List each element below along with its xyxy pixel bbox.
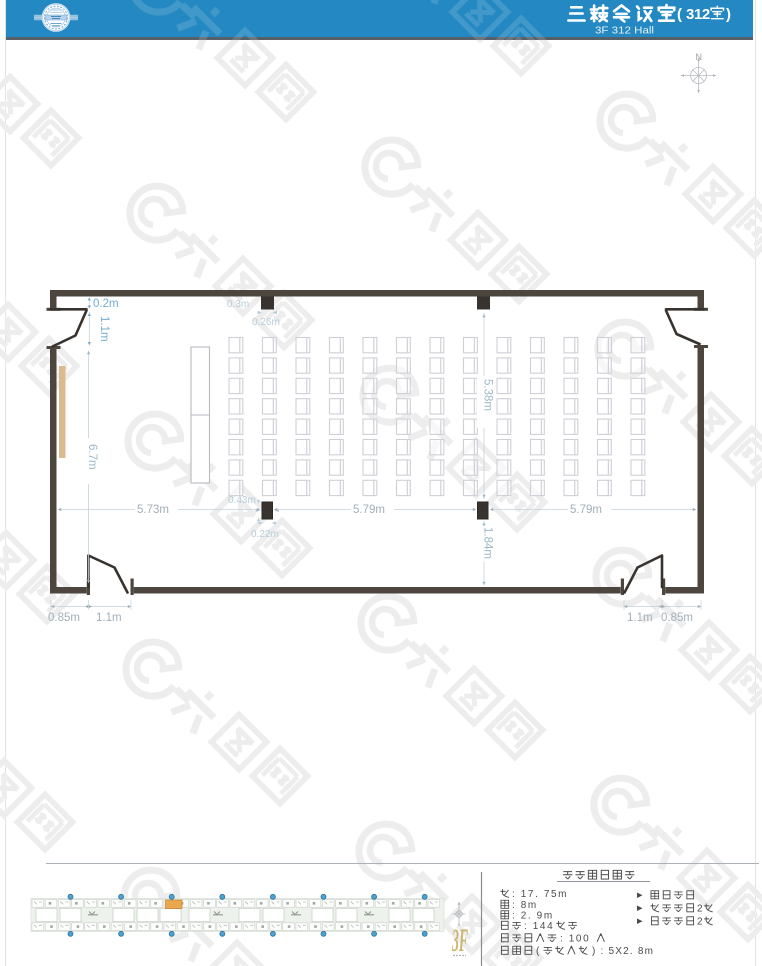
svg-text:2: 2: [697, 917, 703, 928]
svg-text:: 17. 75m: : 17. 75m: [512, 889, 568, 900]
svg-text:312: 312: [686, 6, 710, 23]
svg-text:) : 5X2. 8m: ) : 5X2. 8m: [592, 946, 654, 957]
svg-text:3F: 3F: [451, 922, 468, 959]
svg-text:(: (: [677, 6, 682, 23]
svg-text:: 100: : 100: [560, 934, 590, 945]
svg-text:: 2. 9m: : 2. 9m: [512, 911, 554, 922]
svg-text:: 8m: : 8m: [512, 900, 538, 911]
svg-text:3F 312 Hall: 3F 312 Hall: [595, 25, 654, 37]
svg-text:): ): [726, 6, 731, 23]
svg-text:: 144: : 144: [524, 921, 554, 932]
svg-text:(: (: [536, 946, 540, 957]
svg-text:2: 2: [697, 904, 703, 915]
